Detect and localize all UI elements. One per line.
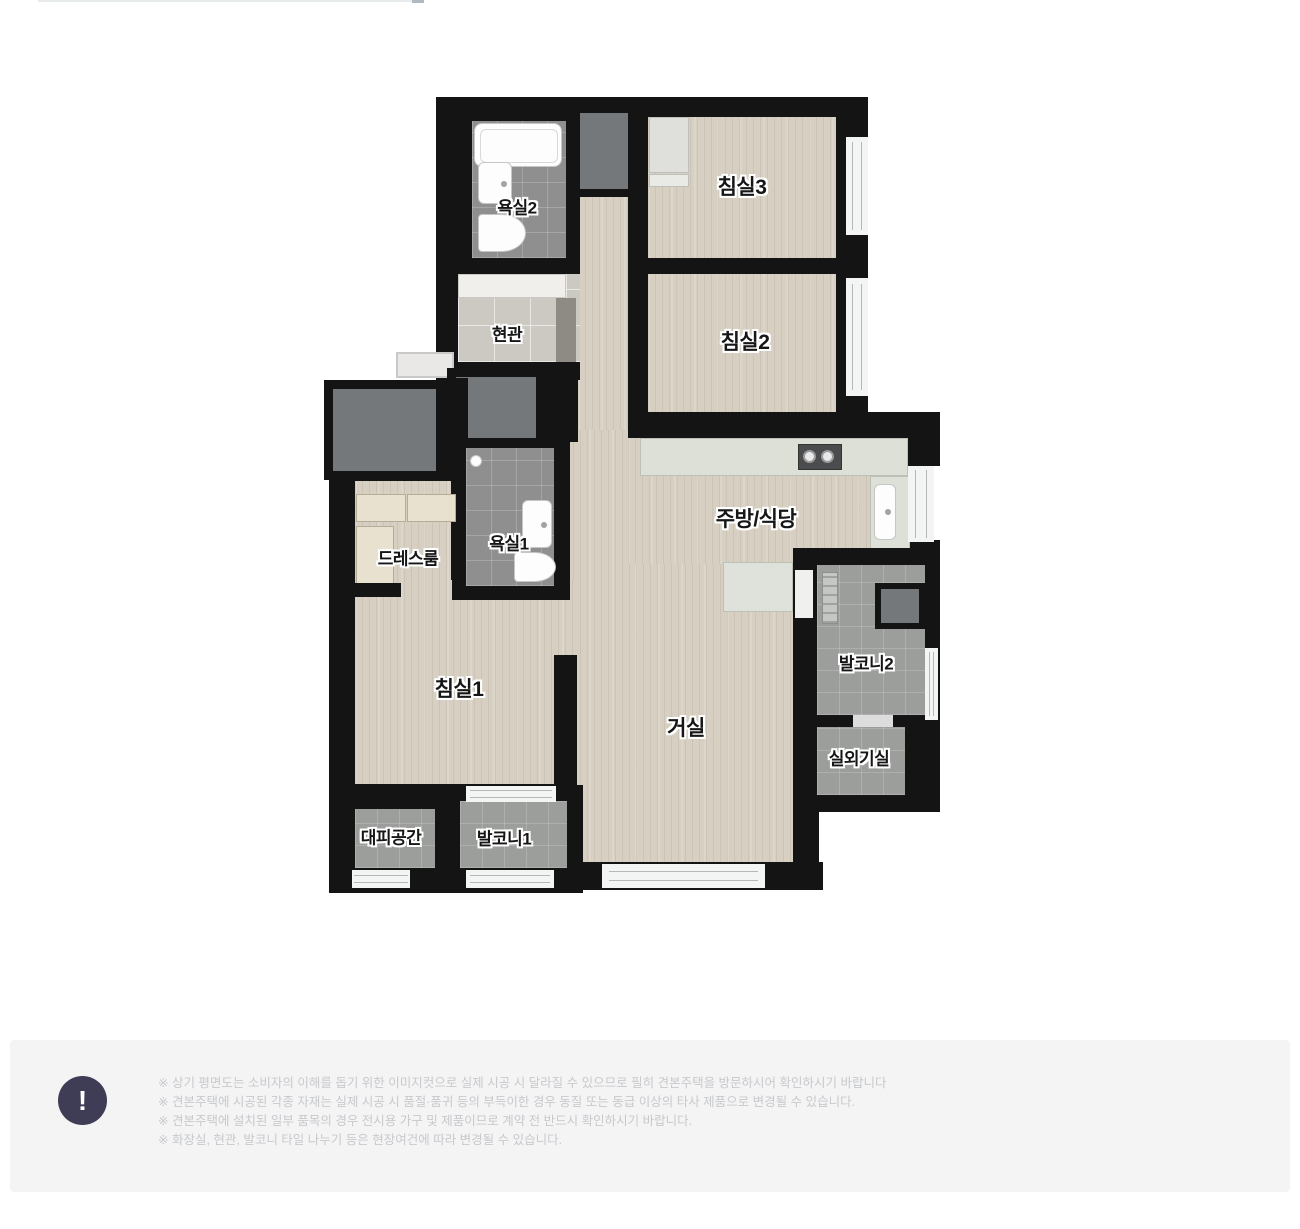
room-label-dressroom: 드레스룸 [378,545,439,570]
wall [353,583,401,597]
wall [906,412,940,466]
toilet [478,214,526,252]
room-label-kitchen: 주방/식당 [716,503,797,533]
room-label-bath1: 욕실1 [489,530,528,555]
room-label-entrance: 현관 [492,321,522,346]
kitchen-sink [874,484,896,540]
storage-box [572,105,636,197]
shoe-cabinet [458,274,566,298]
room-label-balcony1: 발코니1 [477,825,531,850]
floorplan-page: 욕실2 침실3 현관 침실2 드레스룸 욕실1 주방/식당 발코니2 침실1 거… [0,0,1300,1229]
alert-icon-glyph: ! [78,1085,87,1117]
toilet [514,552,556,582]
bedroom2-window [846,278,868,396]
wall [554,655,577,787]
wardrobe-cabinet [356,494,406,522]
balcony1-window [466,870,554,888]
corridor-floor [578,195,630,445]
room-label-evacuation: 대피공간 [361,824,422,849]
exterior-core-box [324,380,446,480]
kitchen-counter [640,438,908,476]
room-label-bed2: 침실2 [721,326,770,356]
disclaimer-line: ※ 견본주택에 설치된 일부 품목의 경우 전시용 가구 및 제품이므로 계약 … [158,1112,887,1131]
balcony1-door [466,786,556,802]
bedroom3-window [846,137,868,235]
room-label-bed3: 침실3 [718,171,767,201]
balcony2-door-opening [795,570,813,618]
wall [542,362,578,442]
room-label-bed1: 침실1 [435,673,484,703]
bathtub-inner [480,129,558,163]
wardrobe-cabinet [407,494,456,522]
disclaimer-line: ※ 상기 평면도는 소비자의 이해를 돕기 위한 이미지컷으로 실제 시공 시 … [158,1074,887,1093]
entry-landing [396,352,454,378]
alert-icon: ! [58,1076,107,1125]
room-label-balcony2: 발코니2 [839,650,893,675]
escape-ladder-icon [822,572,838,624]
door-opening [853,715,893,727]
disclaimer-lines: ※ 상기 평면도는 소비자의 이해를 돕기 위한 이미지컷으로 실제 시공 시 … [158,1074,887,1150]
duct-box [875,583,925,629]
room-label-living: 거실 [667,712,705,742]
disclaimer-line: ※ 견본주택에 시공된 각종 자재는 실제 시공 시 품절·품귀 등의 부득이한… [158,1093,887,1112]
closet [649,117,689,173]
wall [628,412,920,438]
stove-icon [798,444,842,470]
closet-drawer [649,174,689,187]
evacuation-window [352,870,410,888]
balcony2-window [925,648,938,720]
shower-head [470,455,482,467]
wall [640,258,840,274]
disclaimer-box: ! ※ 상기 평면도는 소비자의 이해를 돕기 위한 이미지컷으로 실제 시공 … [10,1040,1290,1192]
entrance-step-strip [556,298,576,362]
room-label-bath2: 욕실2 [497,194,536,219]
disclaimer-line: ※ 화장실, 현관, 발코니 타일 나누기 등은 현장여건에 따라 변경될 수 … [158,1131,887,1150]
room-label-outdoor-unit: 실외기실 [829,745,890,770]
living-room-window [602,864,765,888]
dining-island [723,562,793,612]
top-divider [38,0,422,2]
kitchen-window [908,466,934,542]
top-divider-tick [412,0,424,3]
